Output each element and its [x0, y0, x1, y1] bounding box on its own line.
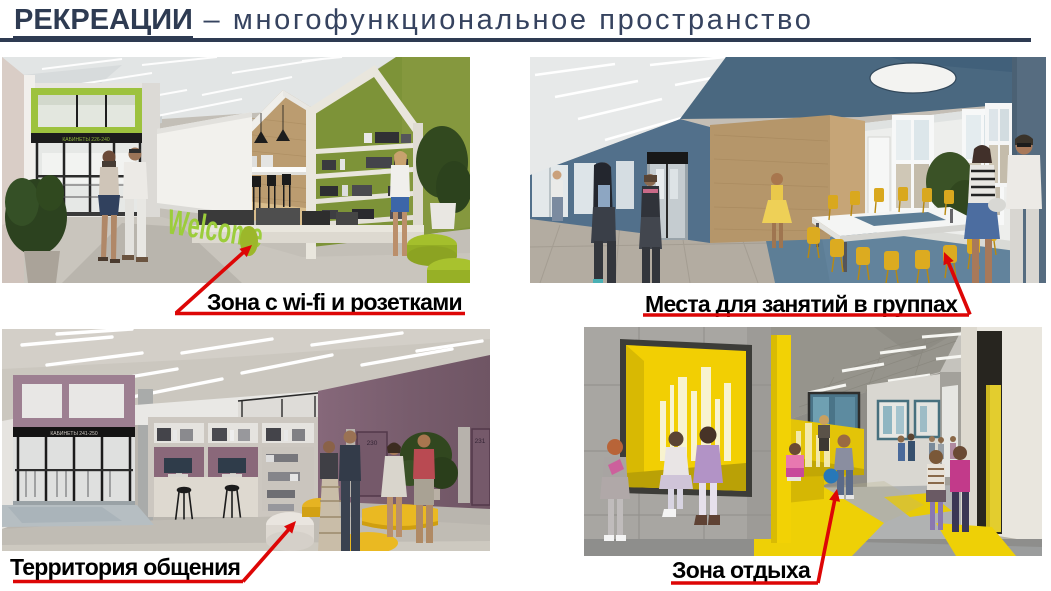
svg-text:231: 231 — [475, 438, 486, 445]
svg-text:КАБИНЕТЫ 226-240: КАБИНЕТЫ 226-240 — [62, 137, 110, 143]
svg-text:230: 230 — [367, 440, 378, 447]
svg-text:КАБИНЕТЫ 241-250: КАБИНЕТЫ 241-250 — [50, 431, 98, 437]
